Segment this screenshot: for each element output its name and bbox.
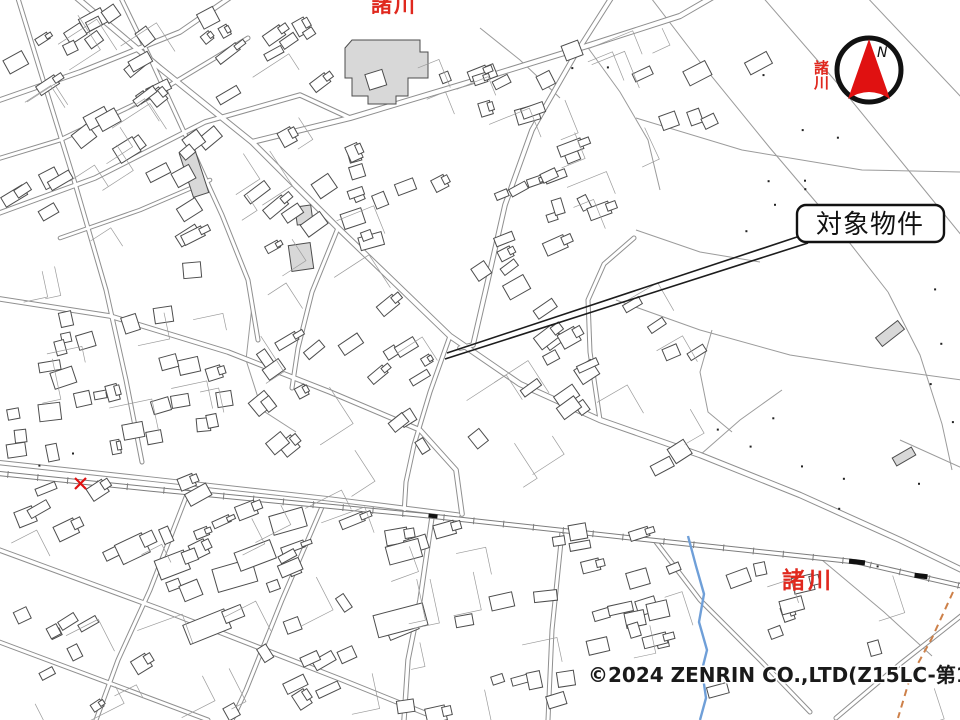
building (433, 519, 463, 539)
building (39, 667, 55, 681)
building (122, 421, 145, 440)
building (542, 232, 574, 256)
compass-n-label: N (877, 45, 888, 61)
building (283, 617, 302, 635)
building (13, 607, 31, 624)
building (216, 390, 233, 407)
building (779, 596, 805, 615)
map-page: 対象物件 諸川 諸川 諸川 N ©2024 ZENRIN CO.,LTD(Z15… (0, 0, 960, 720)
building (53, 515, 86, 542)
building (701, 113, 718, 129)
building (345, 141, 366, 162)
building (503, 275, 531, 300)
building (265, 239, 284, 254)
building (648, 317, 667, 333)
building (63, 40, 79, 55)
building (216, 38, 247, 65)
building (349, 164, 366, 180)
map-graphics (0, 0, 960, 720)
building (536, 70, 555, 89)
building (744, 51, 772, 74)
building (7, 408, 20, 420)
building (131, 651, 157, 675)
boundary-line (898, 592, 953, 718)
building (867, 640, 881, 657)
copyright-text: ©2024 ZENRIN CO.,LTD(Z15LC-第138号） (588, 663, 960, 687)
building (338, 333, 363, 355)
building (592, 608, 610, 622)
lot-lines (11, 15, 944, 720)
building (58, 311, 73, 328)
building (218, 24, 232, 39)
building (556, 670, 575, 687)
building (73, 390, 91, 407)
building (244, 181, 270, 204)
building (45, 443, 59, 462)
building (170, 393, 190, 408)
building (194, 525, 213, 539)
building (176, 198, 202, 222)
building (421, 353, 435, 366)
building (683, 61, 712, 86)
building (336, 594, 353, 613)
building (753, 562, 766, 577)
building (114, 528, 159, 564)
building (154, 546, 201, 580)
building (150, 397, 171, 415)
building (568, 523, 588, 541)
building (310, 70, 335, 93)
building (311, 173, 337, 198)
building (200, 30, 215, 44)
building (768, 625, 783, 639)
building (38, 203, 59, 221)
building (626, 568, 651, 589)
building (234, 540, 276, 572)
callout-leader-line (445, 243, 808, 359)
building (659, 111, 680, 131)
building (368, 362, 393, 385)
building (67, 644, 83, 661)
building (586, 637, 610, 656)
building (166, 578, 182, 591)
building (409, 369, 430, 386)
building (337, 646, 357, 664)
building (58, 613, 78, 631)
compass: N (837, 38, 901, 102)
building (6, 442, 27, 458)
building (153, 306, 173, 324)
stream (688, 536, 707, 720)
place-label-morokawa-right: 諸川 (812, 59, 830, 90)
building (491, 673, 505, 685)
building (14, 429, 27, 443)
building (726, 568, 751, 589)
building (216, 85, 241, 104)
building (526, 671, 543, 690)
building (455, 614, 474, 628)
map-canvas: 対象物件 諸川 諸川 諸川 N ©2024 ZENRIN CO.,LTD(Z15… (0, 0, 960, 720)
building (121, 314, 141, 334)
building (304, 340, 325, 360)
building (376, 290, 404, 316)
building (110, 439, 123, 455)
building (105, 383, 123, 402)
building (159, 354, 179, 371)
building (632, 66, 653, 82)
building (269, 507, 307, 535)
building (339, 509, 373, 530)
building (35, 482, 57, 497)
building (86, 476, 113, 501)
building (396, 699, 414, 714)
building (212, 513, 236, 529)
place-label-morokawa-top: 諸川 (371, 0, 417, 17)
building (552, 536, 565, 547)
building (394, 178, 416, 196)
building (146, 430, 163, 445)
building (468, 428, 488, 449)
building (489, 592, 515, 611)
building (439, 71, 451, 84)
building (205, 364, 227, 382)
building (27, 500, 50, 519)
place-label-morokawa-bottom: 諸川 (782, 567, 834, 594)
building (266, 579, 280, 592)
building (316, 681, 341, 698)
building (534, 590, 558, 603)
building (78, 616, 99, 632)
building (425, 704, 453, 720)
building (177, 356, 200, 375)
callout-text: 対象物件 (816, 210, 924, 240)
building (581, 557, 606, 574)
building (543, 350, 560, 365)
building (38, 402, 62, 421)
building (340, 208, 366, 230)
building (183, 262, 202, 279)
building (431, 173, 452, 192)
building (650, 456, 674, 476)
building (146, 163, 171, 183)
building (235, 498, 265, 521)
building (3, 51, 29, 74)
building (533, 298, 557, 319)
building (569, 540, 591, 551)
building (179, 579, 203, 601)
building (35, 30, 53, 45)
building (687, 108, 704, 126)
building (373, 603, 428, 638)
building (587, 199, 619, 221)
building (206, 413, 219, 428)
building (478, 100, 496, 117)
